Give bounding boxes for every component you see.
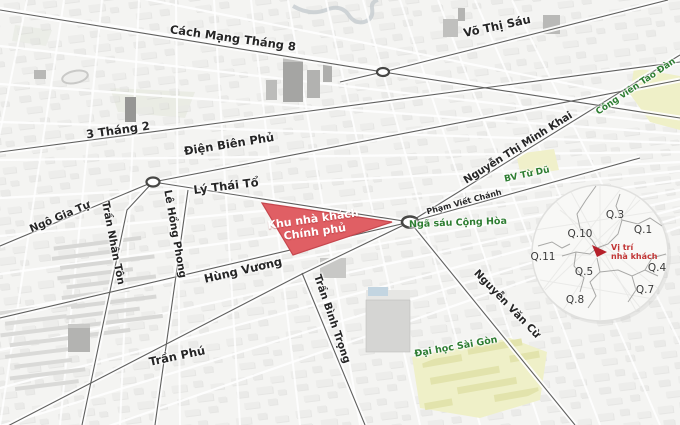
district-label-q1: Q.1	[634, 224, 652, 236]
roundabout-north	[377, 68, 389, 76]
district-label-q4: Q.4	[648, 262, 666, 274]
marker-label-line2: nhà khách	[611, 252, 657, 261]
district-label-q11: Q.11	[531, 251, 556, 263]
location-marker-label: Vị trí nhà khách	[611, 243, 657, 261]
district-label-q7: Q.7	[636, 284, 654, 296]
roundabout-nga-bay	[147, 178, 160, 187]
city-map: Cách Mạng Tháng 8 Võ Thị Sáu 3 Tháng 2 Đ…	[0, 0, 680, 425]
district-label-q5: Q.5	[575, 266, 593, 278]
district-label-q8: Q.8	[566, 294, 584, 306]
district-label-q10: Q.10	[568, 228, 593, 240]
marker-label-line1: Vị trí	[611, 243, 657, 252]
district-label-q3: Q.3	[606, 209, 624, 221]
